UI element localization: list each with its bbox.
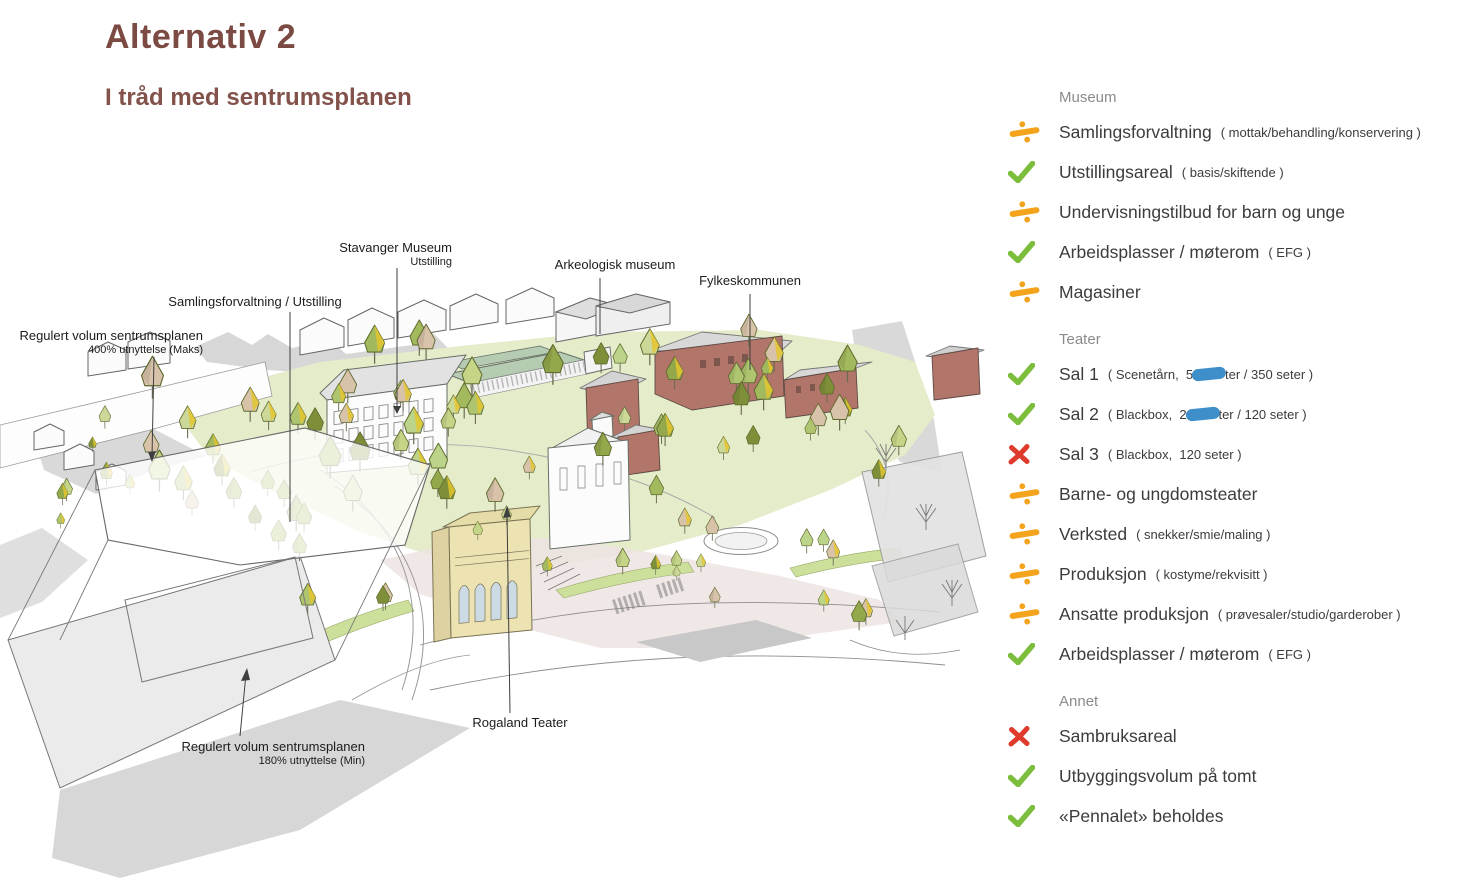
item-label: Arbeidsplasser / møterom <box>1059 644 1259 665</box>
checklist-item: Utbyggingsvolum på tomt <box>1008 756 1470 796</box>
check-icon <box>1008 161 1044 183</box>
page-subtitle: I tråd med sentrumsplanen <box>105 84 412 112</box>
item-label: Samlingsforvaltning <box>1059 122 1212 143</box>
item-detail: ( snekker/smie/maling ) <box>1136 527 1270 542</box>
label-text: Arkeologisk museum <box>520 258 710 273</box>
check-icon <box>1008 363 1044 385</box>
item-detail: ( Blackbox, 120 seter ) <box>1108 447 1242 462</box>
item-label: Barne- og ungdomsteater <box>1059 484 1257 505</box>
label-samlingsforvaltning: Samlingsforvaltning / Utstilling <box>140 295 370 310</box>
label-text: Stavanger Museum <box>252 241 452 256</box>
item-label: Arbeidsplasser / møterom <box>1059 242 1259 263</box>
label-rogaland-teater: Rogaland Teater <box>430 716 610 731</box>
checklist: MuseumSamlingsforvaltning( mottak/behand… <box>1008 84 1470 854</box>
label-text: Rogaland Teater <box>430 716 610 731</box>
cross-icon <box>1008 725 1044 747</box>
item-detail: ( EFG ) <box>1268 245 1311 260</box>
detail-text: ( Scenetårn, 5 <box>1108 367 1193 382</box>
item-detail: ( kostyme/rekvisitt ) <box>1156 567 1268 582</box>
section-heading: Teater <box>1059 330 1470 349</box>
checklist-item: Magasiner <box>1008 272 1470 312</box>
checklist-item: Utstillingsareal( basis/skiftende ) <box>1008 152 1470 192</box>
item-detail: ( Scenetårn, 550 seter / 350 seter ) <box>1108 367 1313 382</box>
label-text: Regulert volum sentrumsplanen <box>165 740 365 755</box>
check-icon <box>1008 765 1044 787</box>
item-label: Sal 1 <box>1059 364 1099 385</box>
detail-text: ter / 350 seter ) <box>1225 367 1313 382</box>
item-label: Magasiner <box>1059 282 1141 303</box>
divide-icon <box>1008 562 1044 586</box>
checklist-item: Undervisningstilbud for barn og unge <box>1008 192 1470 232</box>
label-text: Regulert volum sentrumsplanen <box>3 329 203 344</box>
item-label: Ansatte produksjon <box>1059 604 1209 625</box>
item-label: Utbyggingsvolum på tomt <box>1059 766 1256 787</box>
item-label: Sal 2 <box>1059 404 1099 425</box>
checklist-item: Verksted( snekker/smie/maling ) <box>1008 514 1470 554</box>
section-heading: Annet <box>1059 692 1470 711</box>
checklist-item: Produksjon( kostyme/rekvisitt ) <box>1008 554 1470 594</box>
divide-icon <box>1008 120 1044 144</box>
tree <box>57 513 65 529</box>
label-stavanger-museum: Stavanger Museum Utstilling <box>252 241 452 268</box>
detail-text: ter / 120 seter ) <box>1218 407 1306 422</box>
checklist-item: Arbeidsplasser / møterom( EFG ) <box>1008 232 1470 272</box>
checklist-item: Ansatte produksjon( prøvesaler/studio/ga… <box>1008 594 1470 634</box>
page-title: Alternativ 2 <box>105 18 296 57</box>
checklist-item: Samlingsforvaltning( mottak/behandling/k… <box>1008 112 1470 152</box>
item-label: Produksjon <box>1059 564 1147 585</box>
label-arkeologisk-museum: Arkeologisk museum <box>520 258 710 273</box>
label-subtext: Utstilling <box>252 256 452 268</box>
item-label: Sambruksareal <box>1059 726 1177 747</box>
check-icon <box>1008 805 1044 827</box>
label-regulert-volum-min: Regulert volum sentrumsplanen 180% utnyt… <box>165 740 365 767</box>
divide-icon <box>1008 280 1044 304</box>
label-regulert-volum-maks: Regulert volum sentrumsplanen 400% utnyt… <box>3 329 203 356</box>
checklist-section: TeaterSal 1( Scenetårn, 550 seter / 350 … <box>1008 330 1470 674</box>
checklist-section: AnnetSambruksarealUtbyggingsvolum på tom… <box>1008 692 1470 836</box>
item-detail: ( mottak/behandling/konservering ) <box>1221 125 1421 140</box>
item-detail: ( Blackbox, 220 seter / 120 seter ) <box>1108 407 1307 422</box>
checklist-item: Sambruksareal <box>1008 716 1470 756</box>
label-fylkeskommunen: Fylkeskommunen <box>660 274 840 289</box>
section-heading: Museum <box>1059 88 1470 107</box>
label-text: Samlingsforvaltning / Utstilling <box>140 295 370 310</box>
tree <box>800 529 813 554</box>
label-subtext: 400% utnyttelse (Maks) <box>3 344 203 356</box>
item-detail: ( basis/skiftende ) <box>1182 165 1284 180</box>
blue-marker-annotation: 20 se <box>1185 406 1220 421</box>
checklist-item: Arbeidsplasser / møterom( EFG ) <box>1008 634 1470 674</box>
item-label: Verksted <box>1059 524 1127 545</box>
cross-icon <box>1008 443 1044 465</box>
site-illustration: Stavanger Museum Utstilling Samlingsforv… <box>0 232 990 882</box>
divide-icon <box>1008 482 1044 506</box>
label-text: Fylkeskommunen <box>660 274 840 289</box>
item-detail: ( EFG ) <box>1268 647 1311 662</box>
check-icon <box>1008 643 1044 665</box>
item-detail: ( prøvesaler/studio/garderober ) <box>1218 607 1401 622</box>
item-label: Sal 3 <box>1059 444 1099 465</box>
blue-marker-annotation: 50 se <box>1192 366 1227 381</box>
checklist-item: Sal 2( Blackbox, 220 seter / 120 seter ) <box>1008 394 1470 434</box>
divide-icon <box>1008 522 1044 546</box>
item-label: Utstillingsareal <box>1059 162 1173 183</box>
divide-icon <box>1008 602 1044 626</box>
divide-icon <box>1008 200 1044 224</box>
checklist-section: MuseumSamlingsforvaltning( mottak/behand… <box>1008 88 1470 312</box>
item-label: «Pennalet» beholdes <box>1059 806 1223 827</box>
checklist-item: «Pennalet» beholdes <box>1008 796 1470 836</box>
tree <box>818 529 830 552</box>
check-icon <box>1008 241 1044 263</box>
detail-text: ( Blackbox, 2 <box>1108 407 1187 422</box>
item-label: Undervisningstilbud for barn og unge <box>1059 202 1345 223</box>
check-icon <box>1008 403 1044 425</box>
label-subtext: 180% utnyttelse (Min) <box>165 755 365 767</box>
checklist-item: Sal 3( Blackbox, 120 seter ) <box>1008 434 1470 474</box>
checklist-item: Sal 1( Scenetårn, 550 seter / 350 seter … <box>1008 354 1470 394</box>
checklist-item: Barne- og ungdomsteater <box>1008 474 1470 514</box>
